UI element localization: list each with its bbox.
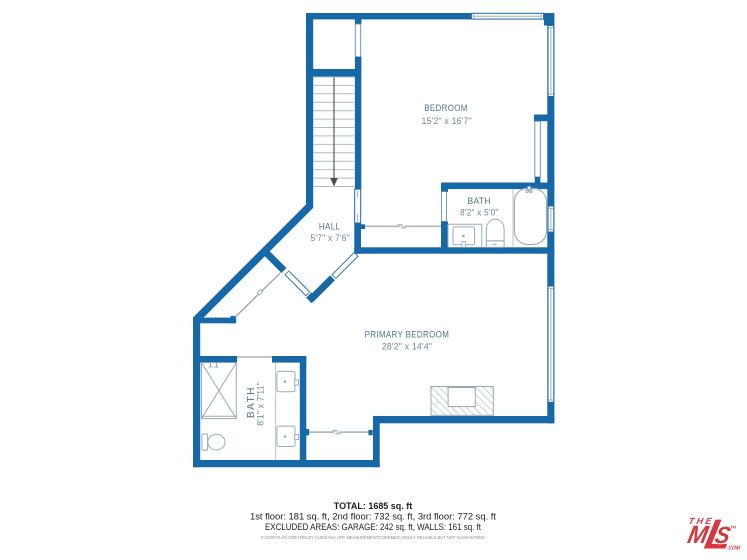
svg-text:TOTAL: 1685 sq. ft: TOTAL: 1685 sq. ft [334,501,413,511]
svg-text:15'2" x 16'7": 15'2" x 16'7" [422,116,472,126]
svg-text:TM: TM [730,526,736,530]
svg-text:HALL: HALL [319,222,341,233]
svg-text:PRIMARY BEDROOM: PRIMARY BEDROOM [365,330,450,341]
svg-text:8'1" x 7'11": 8'1" x 7'11" [255,382,265,426]
svg-text:EXCLUDED AREAS: GARAGE: 242 sq: EXCLUDED AREAS: GARAGE: 242 sq. ft, WALL… [265,522,481,532]
svg-text:28'2" x 14'4": 28'2" x 14'4" [382,341,432,351]
svg-text:8'2" x 5'0": 8'2" x 5'0" [460,208,499,218]
svg-text:5'7" x 7'6": 5'7" x 7'6" [310,233,350,243]
svg-text:BATH: BATH [467,196,491,207]
svg-text:BEDROOM: BEDROOM [424,103,468,114]
svg-text:.COM: .COM [726,546,741,552]
svg-text:FLOOR PLAN CREATED BY CUBICASA: FLOOR PLAN CREATED BY CUBICASA APP. MEAS… [261,535,486,540]
svg-text:1st floor: 181 sq. ft, 2nd flo: 1st floor: 181 sq. ft, 2nd floor: 732 sq… [250,512,497,522]
